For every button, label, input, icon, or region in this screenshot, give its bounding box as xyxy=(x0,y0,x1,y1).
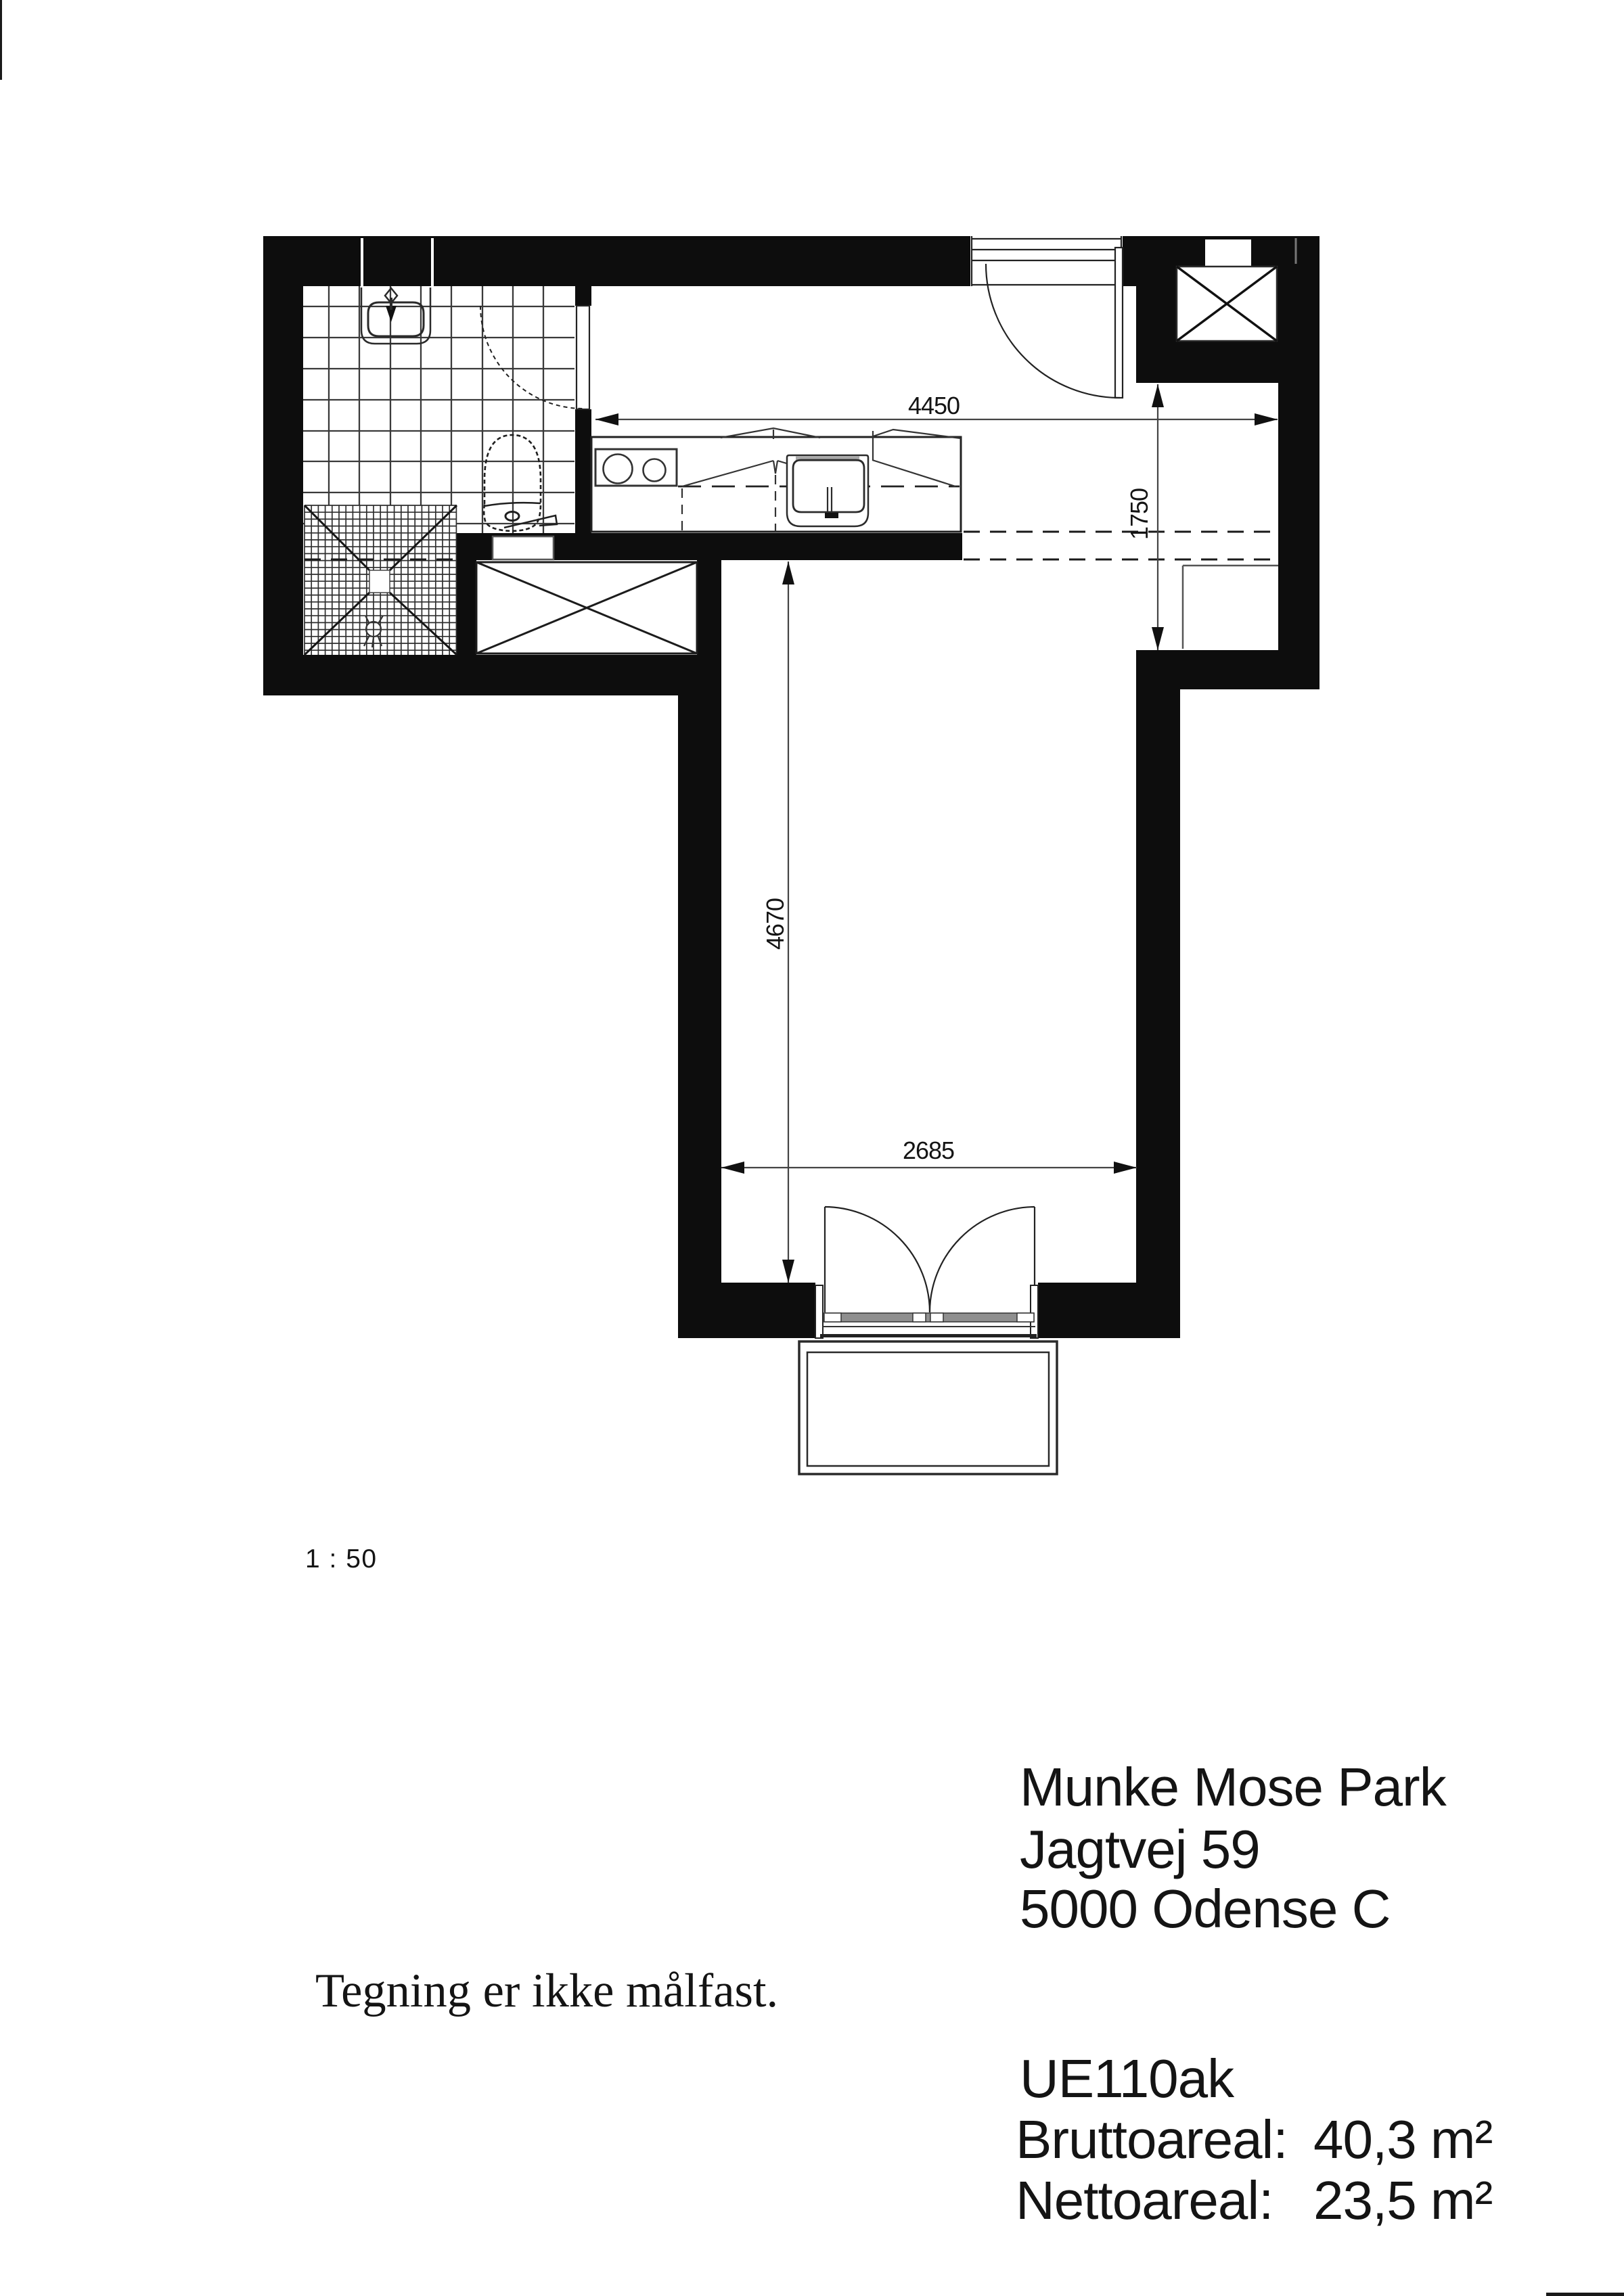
svg-text:Nettoareal:: Nettoareal: xyxy=(1016,2170,1273,2230)
svg-text:23,5 m²: 23,5 m² xyxy=(1313,2170,1493,2230)
svg-text:UE110ak: UE110ak xyxy=(1020,2048,1235,2109)
svg-text:Jagtvej 59: Jagtvej 59 xyxy=(1020,1819,1260,1879)
svg-text:1 : 50: 1 : 50 xyxy=(305,1544,378,1574)
svg-text:Munke Mose Park: Munke Mose Park xyxy=(1020,1757,1447,1817)
svg-text:4450: 4450 xyxy=(908,392,960,419)
svg-text:5000 Odense C: 5000 Odense C xyxy=(1020,1879,1390,1939)
svg-text:4670: 4670 xyxy=(761,898,789,950)
svg-text:40,3 m²: 40,3 m² xyxy=(1313,2109,1493,2169)
svg-text:Tegning er ikke målfast.: Tegning er ikke målfast. xyxy=(315,1965,778,2017)
svg-text:2685: 2685 xyxy=(903,1136,954,1164)
svg-text:1750: 1750 xyxy=(1125,488,1153,540)
svg-text:Bruttoareal:: Bruttoareal: xyxy=(1016,2109,1288,2169)
